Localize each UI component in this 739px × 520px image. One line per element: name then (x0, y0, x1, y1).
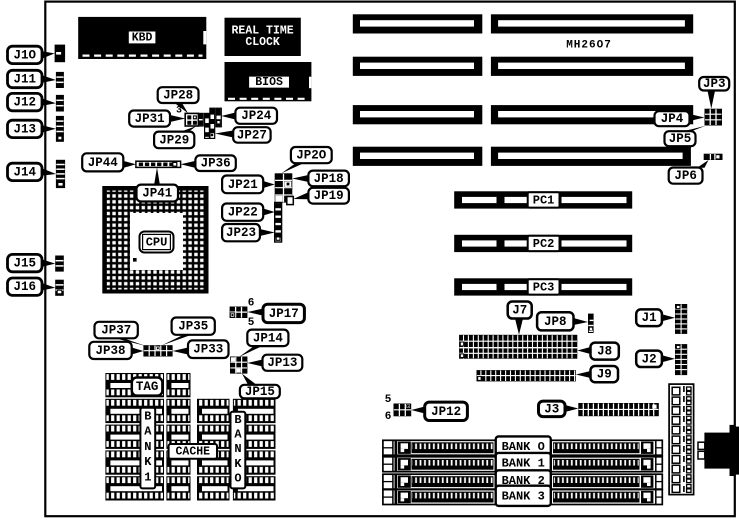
svg-text:B: B (234, 413, 241, 427)
svg-text:JP29: JP29 (159, 133, 189, 147)
svg-text:JP31: JP31 (135, 112, 165, 126)
svg-text:J7: J7 (512, 304, 527, 318)
svg-text:5: 5 (248, 317, 255, 329)
svg-text:3: 3 (176, 105, 182, 116)
svg-text:JP37: JP37 (101, 324, 131, 338)
svg-text:PC3: PC3 (533, 280, 555, 294)
svg-text:J12: J12 (14, 96, 37, 110)
svg-text:JP21: JP21 (228, 178, 258, 192)
svg-text:J11: J11 (14, 73, 37, 87)
svg-text:JP12: JP12 (431, 405, 461, 419)
svg-text:J16: J16 (14, 280, 37, 294)
svg-text:JP24: JP24 (241, 109, 272, 123)
svg-text:JP35: JP35 (178, 320, 208, 334)
svg-text:JP28: JP28 (163, 89, 193, 103)
svg-text:J2: J2 (642, 352, 657, 366)
svg-text:J8: J8 (597, 345, 612, 359)
svg-text:TAG: TAG (136, 380, 159, 394)
svg-text:K: K (144, 455, 152, 469)
svg-text:CLOCK: CLOCK (245, 36, 280, 49)
svg-text:JP3: JP3 (703, 77, 726, 91)
svg-text:JP14: JP14 (253, 331, 284, 345)
svg-text:J13: J13 (14, 122, 37, 136)
svg-text:5: 5 (385, 394, 392, 406)
svg-text:BANK 1: BANK 1 (502, 457, 545, 471)
svg-text:J14: J14 (14, 165, 37, 179)
svg-text:JP6: JP6 (674, 169, 697, 183)
svg-text:JP44: JP44 (88, 156, 119, 170)
svg-text:JP19: JP19 (314, 189, 344, 203)
svg-text:PC2: PC2 (533, 237, 555, 251)
svg-text:O: O (234, 471, 241, 485)
svg-text:JP41: JP41 (142, 187, 172, 201)
svg-text:CPU: CPU (146, 236, 168, 250)
svg-text:BIOS: BIOS (255, 76, 283, 89)
svg-text:JP38: JP38 (95, 344, 125, 358)
svg-text:K: K (234, 457, 242, 471)
svg-text:J1: J1 (642, 311, 657, 325)
svg-text:JP5: JP5 (669, 132, 692, 146)
svg-text:JP36: JP36 (201, 157, 231, 171)
svg-text:PC1: PC1 (533, 194, 555, 208)
svg-text:B: B (144, 410, 151, 424)
svg-text:A: A (234, 428, 242, 442)
svg-text:N: N (144, 440, 151, 454)
svg-text:JP15: JP15 (245, 385, 275, 399)
svg-text:J9: J9 (597, 368, 612, 382)
svg-text:JP4: JP4 (661, 112, 684, 126)
svg-text:JP18: JP18 (314, 172, 344, 186)
svg-text:MH26O7: MH26O7 (566, 39, 612, 51)
svg-text:JP17: JP17 (269, 307, 299, 321)
svg-text:6: 6 (248, 298, 255, 310)
svg-text:A: A (144, 425, 152, 439)
svg-text:JP23: JP23 (226, 226, 256, 240)
svg-text:JP33: JP33 (193, 343, 223, 357)
svg-text:JP13: JP13 (267, 356, 297, 370)
svg-text:N: N (234, 442, 241, 456)
svg-text:J15: J15 (14, 257, 37, 271)
svg-text:J3: J3 (544, 402, 559, 416)
svg-text:JP8: JP8 (544, 315, 567, 329)
svg-text:J1O: J1O (14, 48, 37, 62)
svg-text:JP2O: JP2O (296, 149, 327, 163)
svg-text:JP22: JP22 (228, 206, 258, 220)
svg-text:BANK 3: BANK 3 (502, 489, 545, 503)
svg-text:1: 1 (144, 470, 151, 484)
svg-text:6: 6 (385, 411, 392, 423)
svg-text:JP27: JP27 (237, 128, 267, 142)
svg-text:KBD: KBD (132, 32, 153, 45)
svg-text:CACHE: CACHE (176, 445, 211, 458)
